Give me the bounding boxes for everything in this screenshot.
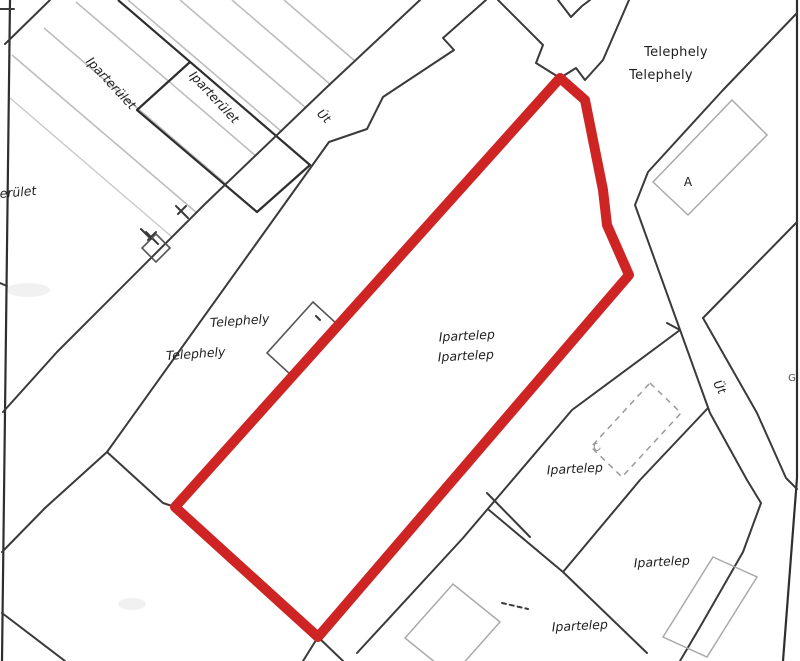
label-road-ut-e: Üt (710, 377, 731, 398)
tick-mark (176, 206, 188, 218)
label-building-a: A (684, 175, 693, 189)
parcel-boundary (2, 508, 45, 552)
buildings (141, 100, 767, 661)
southwest-parcels (2, 452, 343, 661)
label-building-c: C (591, 442, 603, 455)
building-strip-outline (405, 584, 500, 661)
road-northwest (3, 0, 486, 452)
southeast-parcels (357, 323, 708, 653)
parcel-boundary (303, 637, 343, 661)
parcel-boundary (45, 452, 175, 508)
label-telephely-w-1: Telephely (210, 311, 271, 330)
label-ipartelep-center-1: Ipartelep (438, 327, 495, 345)
building-c-dashed-outline (591, 383, 681, 477)
parcel-boundary (498, 0, 560, 78)
label-partial-g: G (788, 373, 796, 384)
label-telephely-ne-2: Telephely (628, 68, 693, 83)
label-ipartelep-center-2: Ipartelep (437, 347, 494, 365)
label-iparterulet-partial: erület (0, 183, 38, 201)
parcel-boundary (357, 323, 680, 653)
label-telephely-ne-1: Telephely (643, 45, 708, 60)
label-iparterulet-1: Iparterület (83, 54, 140, 113)
label-ipartelep-s: Ipartelep (551, 617, 608, 635)
tick-mark (141, 229, 151, 239)
strip-line (232, 0, 331, 85)
cadastral-map: Iparterület Iparterület erület Telephely… (0, 0, 800, 661)
parcel-boundary (563, 408, 708, 572)
road-edge (703, 318, 797, 489)
building-small-outline (142, 234, 170, 262)
tick-mark (316, 316, 320, 320)
dashed-fragment (502, 603, 528, 609)
label-ipartelep-se-2: Ipartelep (633, 553, 690, 571)
scan-smudge (118, 598, 146, 610)
strip-parcels-light (10, 0, 355, 237)
map-canvas: Iparterület Iparterület erület Telephely… (0, 0, 800, 661)
building-a-outline (653, 100, 767, 215)
border-left (2, 0, 10, 661)
highlighted-parcel-outline (175, 78, 629, 637)
label-iparterulet-2: Iparterület (186, 68, 243, 127)
label-ipartelep-se-1: Ipartelep (546, 460, 603, 478)
parcel-boundary (2, 613, 65, 661)
parcel-boundary (558, 0, 590, 17)
scan-smudge (6, 283, 50, 297)
label-telephely-w-2: Telephely (166, 344, 227, 363)
border-right (783, 0, 797, 661)
parcel-boundary (560, 0, 629, 80)
parcel-boundary (703, 222, 797, 318)
label-road-ut-nw: Út (314, 106, 335, 127)
strip-line (284, 0, 355, 61)
top-junction (498, 0, 629, 80)
strip-line (180, 0, 306, 108)
corner-boundary (5, 0, 50, 44)
building-strip-outline (663, 557, 757, 657)
